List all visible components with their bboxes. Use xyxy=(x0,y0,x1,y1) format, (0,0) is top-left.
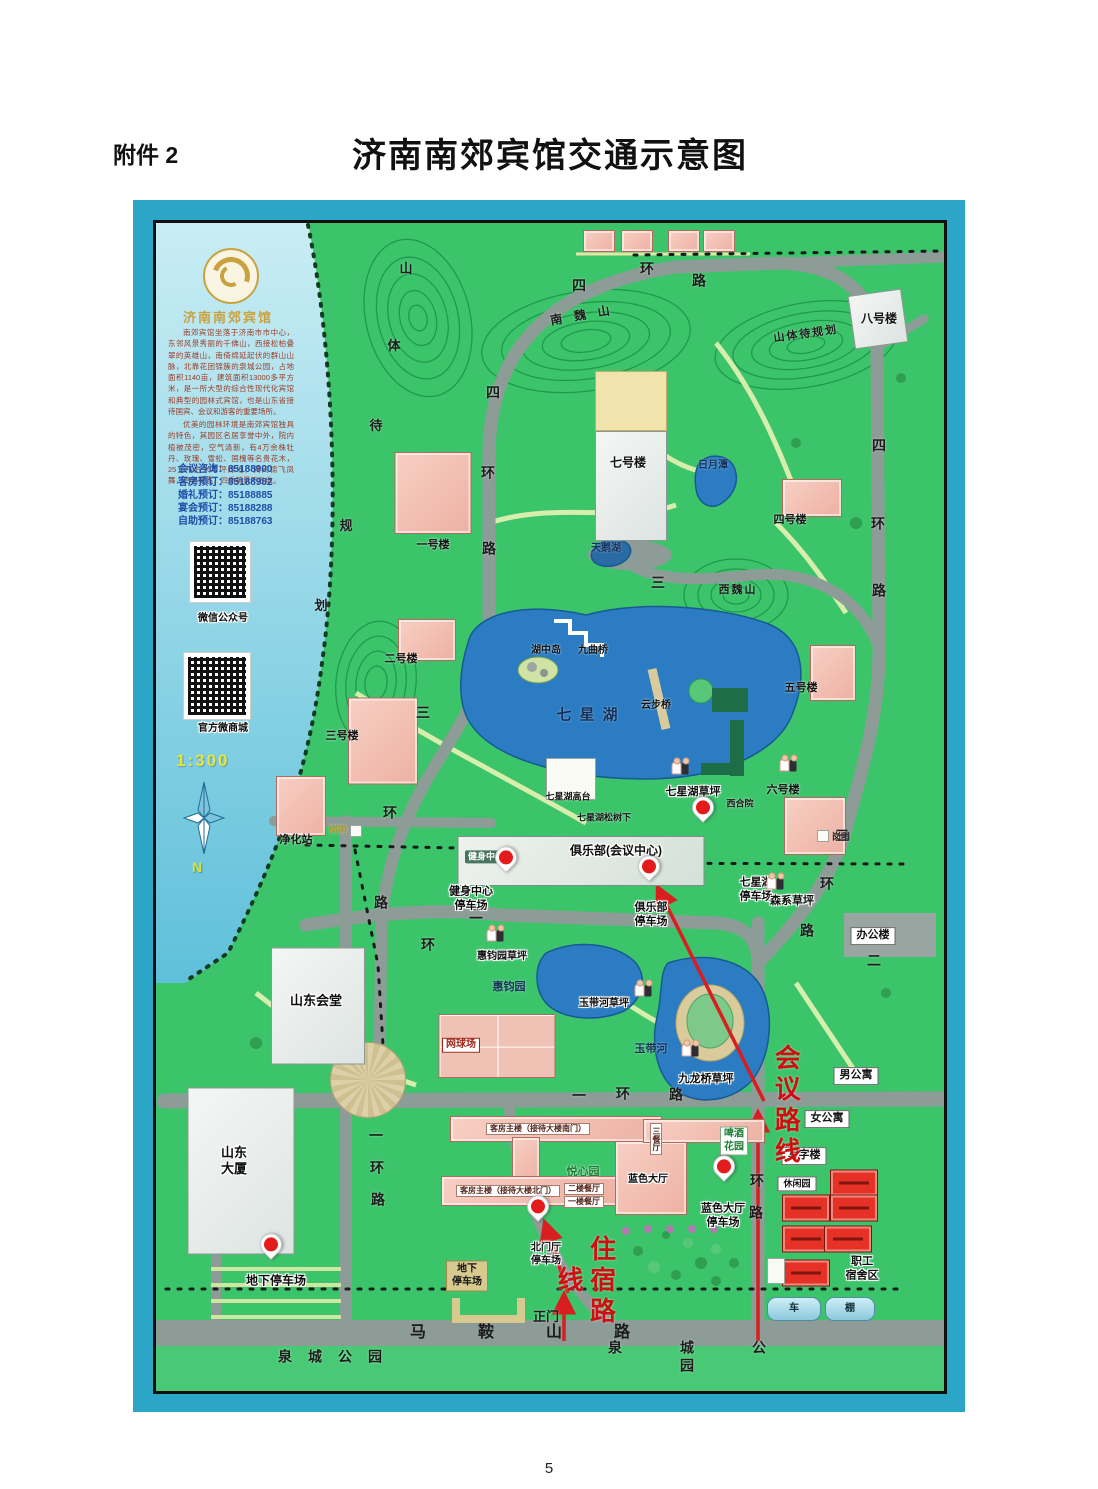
building-no1 xyxy=(395,452,472,534)
road-1ring-h3: 路 xyxy=(669,1086,683,1104)
road-4ring-right-2: 环 xyxy=(871,515,885,533)
road-3ring-right-3: 路 xyxy=(800,922,814,940)
label-purification: 净化站 xyxy=(280,834,313,848)
label-xiheyuan: 西合院 xyxy=(726,798,753,809)
road-east-2: 路 xyxy=(749,1204,763,1222)
road-1ring-v3: 路 xyxy=(371,1191,385,1209)
label-no7: 七号楼 xyxy=(610,456,646,471)
dorm-block-5 xyxy=(824,1226,872,1253)
building-no3 xyxy=(348,698,418,785)
label-no5: 五号楼 xyxy=(785,682,818,696)
road-4ring-top-1: 四 xyxy=(572,277,586,295)
gate-shed xyxy=(767,1258,785,1284)
map-frame: 八号楼山体待规划南魏山山体待规划西魏山四环路四环路四环路三环路三三环路二环二一环… xyxy=(133,200,965,1412)
compass-icon xyxy=(182,779,226,857)
hotel-description-p1: 南郊宾馆坐落于济南市市中心，东邻风景秀丽的千佛山，西接松柏叠翠的英雄山，南倚绵延… xyxy=(168,327,294,417)
road-1ring-v2: 环 xyxy=(370,1159,384,1177)
dorm-block-2 xyxy=(782,1195,830,1222)
label-3-restaurant: 三餐厅 xyxy=(650,1123,662,1155)
page-title: 济南南郊宾馆交通示意图 xyxy=(330,128,770,177)
qr-mall-caption: 官方微商城 xyxy=(198,723,248,736)
road-2ring-right: 二 xyxy=(867,952,881,970)
label-yudai-lawn: 玉带河草坪 xyxy=(579,998,629,1011)
label-2f-restaurant: 二楼餐厅 xyxy=(564,1183,604,1195)
building-purification xyxy=(276,776,326,836)
label-blue-hall: 蓝色大厅 xyxy=(628,1174,668,1187)
label-senxi-lawn: 森系草坪 xyxy=(770,895,814,909)
top-building-1 xyxy=(583,230,615,252)
label-nanwei-hill: 南魏山 xyxy=(549,301,623,328)
label-sunmoon-pond: 日月潭 xyxy=(698,460,728,473)
road-4ring-left-1: 四 xyxy=(486,384,500,402)
pin-bluehall-parking xyxy=(708,1151,739,1182)
bike-shed-2: 棚 xyxy=(825,1297,875,1321)
label-shandong-hall: 山东会堂 xyxy=(290,993,342,1009)
hill-char-ti: 体 xyxy=(387,338,400,354)
road-4ring-right-1: 四 xyxy=(872,437,886,455)
label-club-parking: 俱乐部 停车场 xyxy=(635,901,668,929)
label-reception-north-gate: 客房主楼（接待大楼北门） xyxy=(456,1185,560,1197)
wedding-couple-yudai xyxy=(635,980,654,997)
label-swan-lake: 天鹅湖 xyxy=(591,543,621,556)
label-womens-apartment: 女公寓 xyxy=(805,1110,850,1128)
qr-wechat xyxy=(190,542,250,602)
label-xiwei-hill: 西魏山 xyxy=(719,584,758,598)
hill-char-hua: 划 xyxy=(314,598,327,614)
label-no2: 二号楼 xyxy=(385,653,418,667)
road-4ring-top-2: 环 xyxy=(640,260,654,278)
hill-char-gui: 规 xyxy=(339,518,352,534)
label-reception-south-gate: 客房主楼（接待大楼南门） xyxy=(486,1123,590,1135)
road-4ring-left-3: 路 xyxy=(482,540,496,558)
wedding-couple-qixing xyxy=(672,758,691,775)
road-1ring-h1: 一 xyxy=(572,1087,586,1105)
label-no8: 八号楼 xyxy=(861,312,897,327)
label-tennis-court: 网球场 xyxy=(442,1038,480,1053)
label-guard-west: 岗哨 xyxy=(329,824,347,835)
map-canvas: 八号楼山体待规划南魏山山体待规划西魏山四环路四环路四环路三环路三三环路二环二一环… xyxy=(153,220,947,1394)
label-no6: 六号楼 xyxy=(767,784,800,798)
label-underground-parking: 地下停车场 xyxy=(246,1274,306,1289)
building-no6 xyxy=(784,797,846,855)
page-number: 5 xyxy=(0,1460,1098,1477)
dorm-block-6 xyxy=(782,1260,830,1287)
wedding-couple-senxi xyxy=(767,873,786,890)
label-no4: 四号楼 xyxy=(774,514,807,528)
label-qixing-terrace: 七星湖高台 xyxy=(545,791,590,802)
wedding-couple-no6 xyxy=(780,755,799,772)
road-1ring-h2: 环 xyxy=(616,1085,630,1103)
label-qixing-lawn: 七星湖草坪 xyxy=(666,786,721,800)
label-staff-dorm: 职工 宿舍区 xyxy=(846,1255,879,1283)
qr-mall xyxy=(184,653,250,719)
label-no1: 一号楼 xyxy=(417,539,450,553)
road-3ring-left-1: 三 xyxy=(416,704,430,722)
label-bluehall-parking: 蓝色大厅 停车场 xyxy=(701,1202,745,1230)
road-1ring-v1: 一 xyxy=(369,1127,383,1145)
road-3ring-left-2: 环 xyxy=(383,804,397,822)
underground-parking-box: 地下 停车场 xyxy=(446,1261,488,1292)
road-4ring-top-3: 路 xyxy=(692,272,706,290)
attachment-label: 附件 2 xyxy=(113,136,178,170)
label-qixing-lake: 七星湖 xyxy=(556,707,625,726)
road-3ring-mid: 三 xyxy=(651,574,665,592)
wedding-couple-huijun xyxy=(487,925,506,942)
wedding-couple-jiulong xyxy=(682,1040,701,1057)
road-4ring-left-2: 环 xyxy=(481,464,495,482)
qr-wechat-caption: 微信公众号 xyxy=(198,613,248,626)
road-2ring-2: 环 xyxy=(421,936,435,954)
label-shandong-mansion: 山东 大厦 xyxy=(221,1145,247,1178)
label-lake-island: 湖中岛 xyxy=(531,645,561,658)
map-scale: 1:300 xyxy=(176,751,229,771)
label-qixing-pines: 七星湖松树下 xyxy=(577,812,631,823)
road-3ring-left-3: 路 xyxy=(374,894,388,912)
phone-list: 会议咨询：85188900 客房预订：85188982 婚礼预订：8518888… xyxy=(178,463,298,528)
dorm-block-1 xyxy=(830,1170,878,1197)
label-yudai-river: 玉带河 xyxy=(635,1043,668,1057)
label-hill-pending: 山体待规划 xyxy=(773,324,839,347)
dorm-block-4 xyxy=(782,1226,830,1253)
guard-box-west xyxy=(350,825,362,837)
label-yuexin-garden: 悦心园 xyxy=(567,1166,600,1180)
label-beer-garden: 啤酒 花园 xyxy=(720,1127,748,1156)
guard-box-east xyxy=(817,830,829,842)
bike-shed-1: 车 xyxy=(767,1297,821,1321)
road-east-1: 环 xyxy=(750,1172,764,1190)
label-guard-east: 岗哨 xyxy=(832,831,850,842)
building-no4 xyxy=(782,479,842,517)
label-office-building: 办公楼 xyxy=(851,927,896,945)
label-jiulong-lawn: 九龙桥草坪 xyxy=(679,1073,734,1087)
building-no7-top xyxy=(595,371,667,431)
top-building-2 xyxy=(621,230,653,252)
route-text-conference: 会议路线 xyxy=(770,1044,803,1168)
top-building-4 xyxy=(703,230,735,252)
label-quancheng-park-east: 泉城公园 xyxy=(602,1340,830,1375)
label-fitness-parking: 健身中心 停车场 xyxy=(449,885,493,913)
hotel-logo xyxy=(203,248,259,304)
hill-char-dai: 待 xyxy=(369,418,382,434)
label-quancheng-park-west: 泉城公园 xyxy=(278,1348,398,1366)
compass-north-label: N xyxy=(192,859,202,875)
label-huijun-garden: 惠钧园 xyxy=(493,981,526,995)
label-mens-apartment: 男公寓 xyxy=(834,1067,879,1085)
label-no3: 三号楼 xyxy=(326,730,359,744)
label-1f-restaurant: 一楼餐厅 xyxy=(564,1196,604,1208)
dorm-block-3 xyxy=(830,1195,878,1222)
building-no7 xyxy=(595,431,667,541)
label-yunbu-bridge: 云步桥 xyxy=(641,700,671,713)
road-3ring-right-2: 环 xyxy=(820,875,834,893)
top-building-3 xyxy=(668,230,700,252)
label-leisure-garden: 休闲园 xyxy=(777,1176,816,1191)
hotel-name: 济南南郊宾馆 xyxy=(162,307,294,326)
road-4ring-right-3: 路 xyxy=(872,582,886,600)
label-jiuqu-bridge: 九曲桥 xyxy=(578,645,608,658)
hill-char-shan: 山 xyxy=(399,261,412,277)
route-text-accommodation: 住宿路线 xyxy=(553,1226,618,1336)
label-huijun-lawn: 惠钧园草坪 xyxy=(477,951,527,964)
